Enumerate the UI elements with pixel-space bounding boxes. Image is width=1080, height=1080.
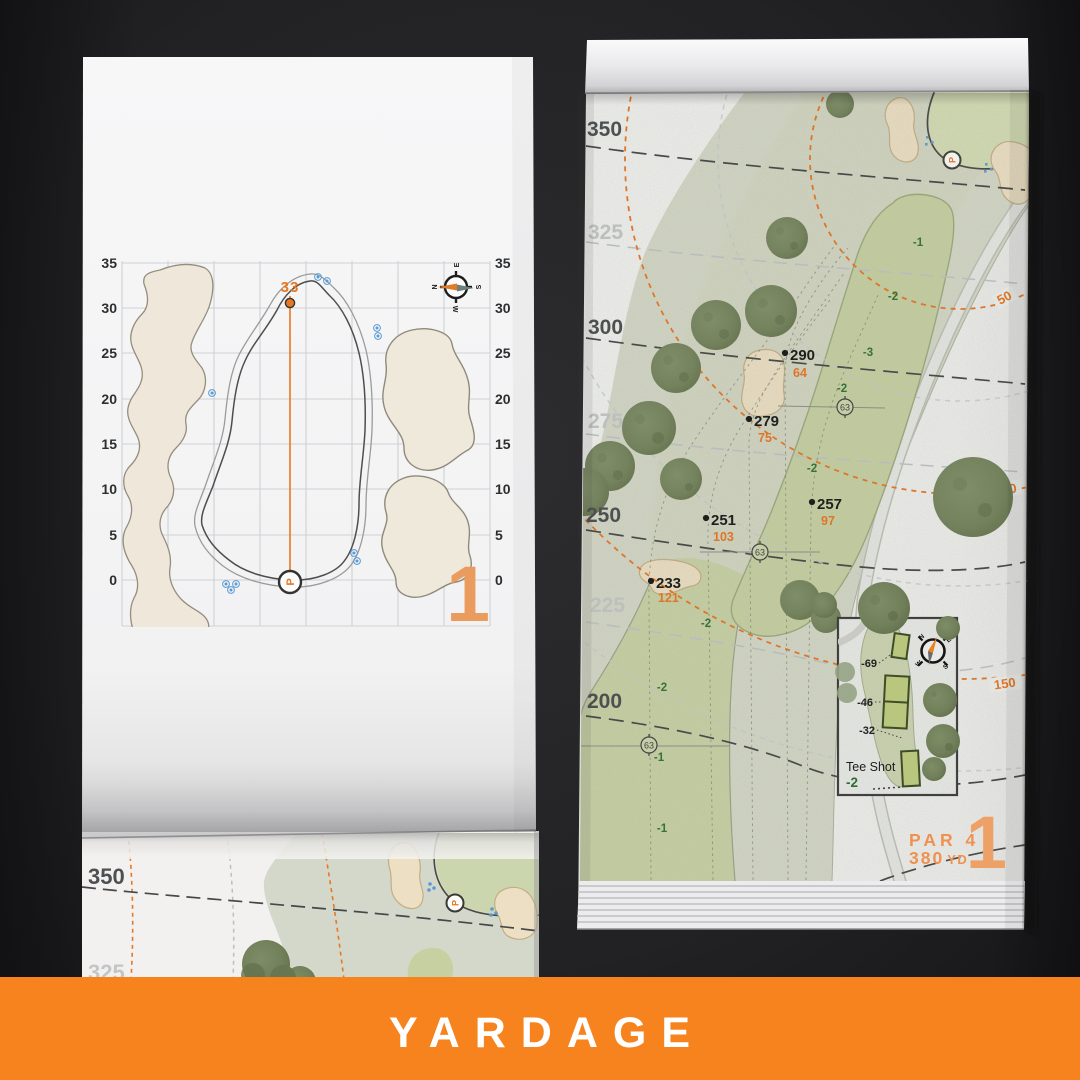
svg-text:5: 5 [495, 527, 503, 543]
svg-text:33: 33 [281, 279, 300, 296]
svg-text:30: 30 [495, 300, 511, 316]
svg-text:Tee Shot: Tee Shot [846, 760, 896, 774]
svg-text:30: 30 [101, 300, 117, 316]
svg-text:N: N [432, 284, 439, 289]
svg-text:-32: -32 [859, 725, 875, 737]
svg-text:1: 1 [966, 801, 1007, 884]
svg-text:25: 25 [101, 345, 117, 361]
svg-text:S: S [476, 284, 483, 289]
svg-text:W: W [451, 306, 458, 313]
svg-text:YARDAGE: YARDAGE [389, 1009, 705, 1057]
svg-text:20: 20 [101, 391, 117, 407]
svg-text:P: P [451, 900, 461, 906]
svg-text:10: 10 [495, 481, 511, 497]
svg-text:E: E [454, 262, 461, 267]
svg-text:-69: -69 [861, 658, 877, 670]
svg-text:P: P [285, 578, 297, 585]
svg-text:1: 1 [446, 549, 490, 638]
svg-text:0: 0 [109, 572, 117, 588]
svg-text:25: 25 [495, 345, 511, 361]
svg-text:350: 350 [88, 864, 125, 889]
svg-text:5: 5 [109, 527, 117, 543]
svg-text:15: 15 [101, 436, 117, 452]
svg-text:35: 35 [495, 255, 511, 271]
svg-text:15: 15 [495, 436, 511, 452]
svg-text:35: 35 [101, 255, 117, 271]
svg-text:-46: -46 [857, 697, 873, 709]
svg-text:20: 20 [495, 391, 511, 407]
svg-text:10: 10 [101, 481, 117, 497]
svg-text:-2: -2 [846, 775, 858, 790]
svg-text:0: 0 [495, 572, 503, 588]
